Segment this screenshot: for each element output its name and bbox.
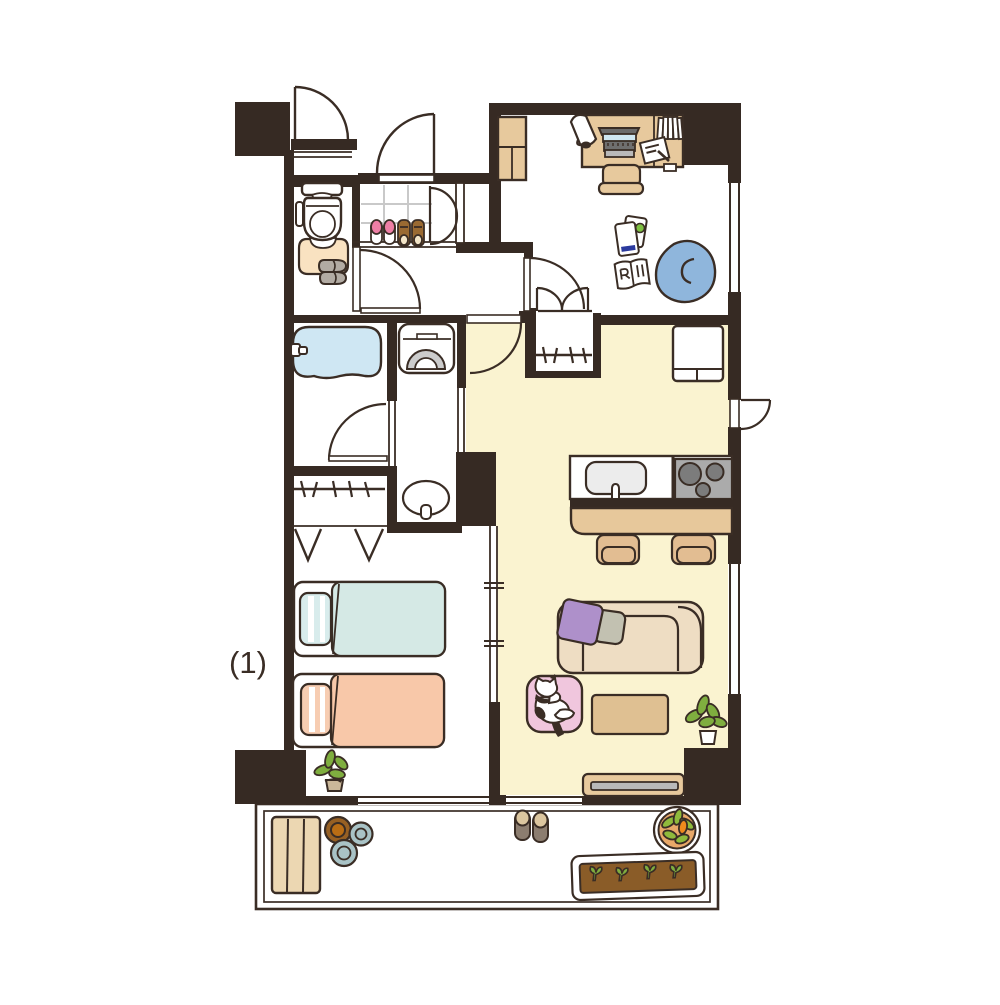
- svg-text:(1): (1): [229, 645, 267, 680]
